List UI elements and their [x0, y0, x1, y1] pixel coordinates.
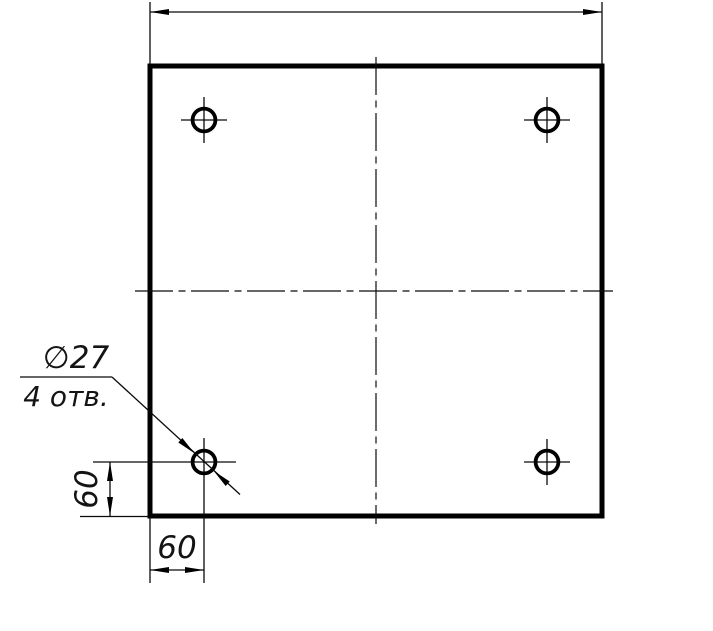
vertical-dim-label: 60 — [69, 469, 105, 508]
dimension-arrow-left — [150, 9, 169, 15]
dimension-arrow-left — [150, 567, 169, 573]
left-vertical-dimension: 60 — [69, 462, 150, 517]
dimension-arrow-right — [583, 9, 602, 15]
dimension-arrow-down — [107, 497, 113, 516]
hole-top-left — [181, 97, 227, 143]
drawing-sheet: ∅27 4 отв. 60 60 — [0, 0, 713, 631]
horizontal-dim-label: 60 — [157, 530, 196, 566]
hole-top-right — [524, 97, 570, 143]
dimension-arrow-up — [107, 462, 113, 481]
dimension-arrow-right — [185, 567, 204, 573]
top-dimension — [150, 2, 602, 64]
diameter-label: ∅27 — [43, 340, 110, 376]
bottom-horizontal-dimension: 60 — [150, 518, 204, 583]
hole-count-label: 4 отв. — [23, 380, 109, 413]
hole-bottom-right — [524, 439, 570, 485]
technical-drawing: ∅27 4 отв. 60 60 — [0, 0, 713, 631]
